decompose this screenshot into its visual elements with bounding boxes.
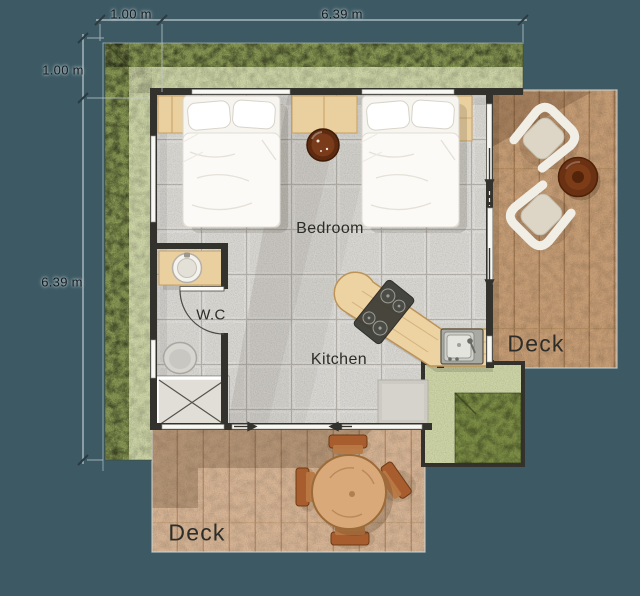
shower: [155, 376, 229, 429]
wc-sink: [159, 251, 226, 290]
planter: [307, 129, 339, 161]
nightstand: [292, 96, 357, 133]
appliance: [378, 380, 428, 424]
dining-table: [312, 455, 386, 529]
kitchen-sink: [441, 329, 483, 364]
toilet: [164, 343, 197, 374]
floorplan-canvas: 1.00 m 6.39 m 1.00 m 6.39 m Bedroom W.C …: [0, 0, 640, 596]
bed-left: [183, 96, 288, 233]
grass-patch: [423, 360, 523, 465]
dining-chair: [329, 435, 367, 454]
floorplan-graphic: [0, 0, 640, 596]
bed-right: [362, 96, 467, 233]
